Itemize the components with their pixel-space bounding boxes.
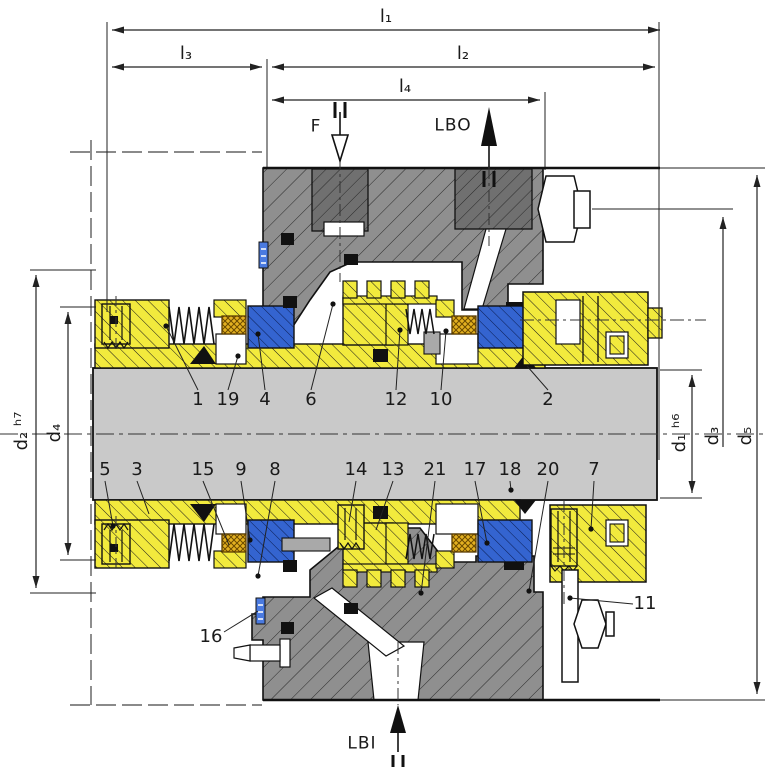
flush-arrow-f [332, 135, 348, 161]
leader-dot [443, 328, 448, 333]
oring-lower-mid [452, 534, 476, 552]
leader-dot [484, 540, 489, 545]
dimension-label-length: l₃ [180, 45, 192, 63]
part-callout-label: 21 [424, 461, 447, 479]
part-callout-label: 8 [269, 461, 280, 479]
port-label: LBI [347, 736, 376, 753]
leader-dot [247, 537, 252, 542]
port-label: LBO [434, 118, 471, 135]
technical-drawing-mechanical-seal: l₁l₃l₂l₄d₂ ʰ⁷d₄d₁ ʰ⁶d₃d₅FLBOLBI119461210… [0, 0, 768, 768]
oring-upper-left [222, 316, 246, 334]
lbi-arrow [390, 705, 406, 733]
leader-line [570, 598, 633, 604]
leader-dot [330, 301, 335, 306]
leader-dot [397, 327, 402, 332]
part-callout-label: 15 [192, 461, 215, 479]
part-callout-label: 20 [537, 461, 560, 479]
drain-plug-fitting [234, 639, 290, 667]
dimension-label-length: l₄ [399, 78, 411, 96]
leader-dot [235, 353, 240, 358]
oring-upper-mid [452, 316, 476, 334]
part-callout-label: 9 [235, 461, 246, 479]
leader-dot [508, 487, 513, 492]
dimension-label-diameter: d₁ ʰ⁶ [671, 414, 689, 453]
leader-dot [110, 523, 115, 528]
part-callout-label: 4 [259, 391, 270, 409]
leader-dot [163, 323, 168, 328]
part-callout-label: 18 [499, 461, 522, 479]
seal-cross-section-svg [0, 0, 768, 768]
part-callout-label: 5 [99, 461, 110, 479]
part-callout-label: 3 [131, 461, 142, 479]
part-callout-label: 17 [464, 461, 487, 479]
dimension-label-length: l₁ [380, 8, 392, 26]
part-callout-label: 6 [305, 391, 316, 409]
gland-bolt-bottom [562, 570, 614, 682]
part-callout-label: 10 [430, 391, 453, 409]
part-callout-label: 16 [200, 628, 223, 646]
dimension-label-diameter: d₂ ʰ⁷ [13, 412, 31, 451]
leader-dot [418, 590, 423, 595]
leader-dot [255, 331, 260, 336]
part-callout-label: 13 [382, 461, 405, 479]
part-callout-label: 7 [588, 461, 599, 479]
part-callout-label: 1 [192, 391, 203, 409]
spring-upper-left [169, 307, 214, 344]
leader-dot [255, 573, 260, 578]
spring-upper-mid [406, 309, 434, 334]
drive-pin-lower [282, 538, 330, 551]
dimension-label-diameter: d₅ [737, 427, 755, 446]
gasket-strip-upper [259, 242, 268, 268]
part-callout-label: 19 [217, 391, 240, 409]
part-callout-label: 12 [385, 391, 408, 409]
leader-dot [526, 588, 531, 593]
port-label: F [311, 119, 322, 136]
drive-collar-upper-right [523, 292, 662, 365]
spring-lower-left [169, 524, 214, 561]
part-callout-label: 2 [542, 391, 553, 409]
gland-stud-nut-top [538, 176, 590, 242]
dimension-label-length: l₂ [457, 45, 469, 63]
dimension-label-diameter: d₃ [704, 427, 722, 446]
leader-dot [588, 526, 593, 531]
lbo-arrow [481, 107, 497, 146]
part-callout-label: 14 [345, 461, 368, 479]
part-callout-label: 11 [634, 595, 657, 613]
seal-face-upper-left [248, 306, 294, 348]
leader-dot [567, 595, 572, 600]
dimension-label-diameter: d₄ [46, 424, 64, 443]
